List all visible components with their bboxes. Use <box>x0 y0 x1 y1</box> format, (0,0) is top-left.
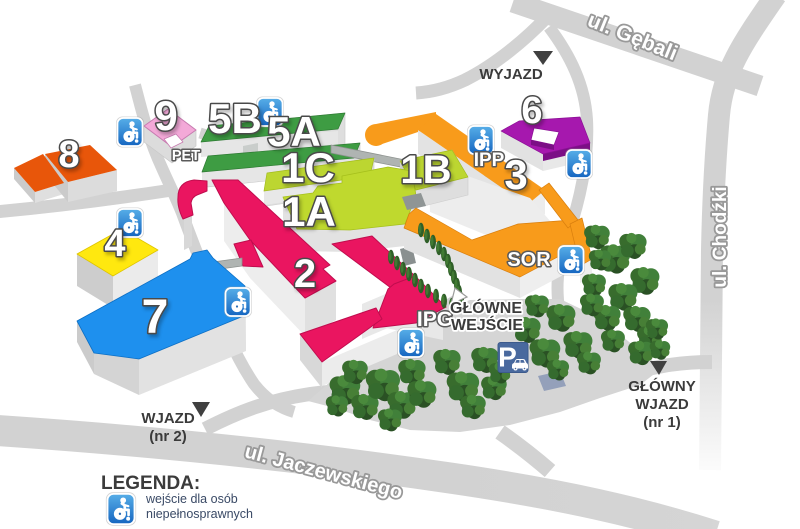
svg-text:1A: 1A <box>282 188 336 235</box>
svg-text:IPG: IPG <box>417 308 453 331</box>
svg-text:(nr 2): (nr 2) <box>149 428 187 445</box>
svg-text:WJAZD: WJAZD <box>141 410 194 427</box>
svg-text:7: 7 <box>142 291 169 344</box>
svg-text:(nr 1): (nr 1) <box>643 414 681 431</box>
svg-text:4: 4 <box>104 223 125 265</box>
svg-text:LEGENDA:: LEGENDA: <box>101 473 200 494</box>
svg-text:2: 2 <box>294 252 316 296</box>
svg-text:SOR: SOR <box>507 249 551 271</box>
svg-text:1C: 1C <box>281 144 335 191</box>
svg-text:6: 6 <box>521 90 542 132</box>
svg-text:3: 3 <box>504 151 527 198</box>
svg-text:IPP: IPP <box>474 150 505 171</box>
svg-text:wejście dla osób: wejście dla osób <box>145 492 238 506</box>
svg-text:1B: 1B <box>400 148 451 192</box>
svg-text:PET: PET <box>172 148 200 164</box>
svg-text:niepełnosprawnych: niepełnosprawnych <box>146 507 253 521</box>
svg-text:GŁÓWNE: GŁÓWNE <box>450 298 522 317</box>
svg-text:9: 9 <box>154 92 177 139</box>
svg-text:WEJŚCIE: WEJŚCIE <box>451 315 523 334</box>
svg-text:GŁÓWNY: GŁÓWNY <box>628 377 696 395</box>
svg-text:ul. Chodźki: ul. Chodźki <box>710 186 731 287</box>
svg-text:5B: 5B <box>208 95 262 142</box>
svg-text:WJAZD: WJAZD <box>635 396 688 413</box>
svg-text:8: 8 <box>58 134 79 176</box>
svg-text:WYJAZD: WYJAZD <box>479 66 543 83</box>
